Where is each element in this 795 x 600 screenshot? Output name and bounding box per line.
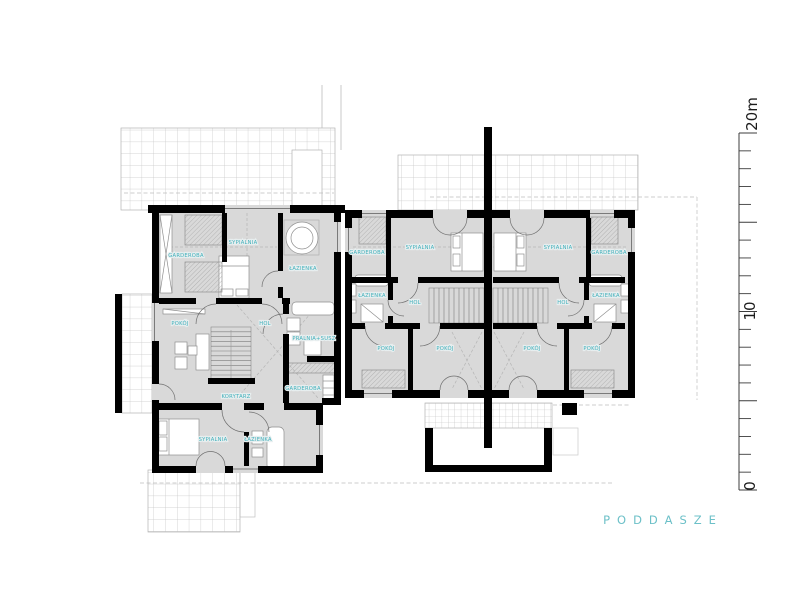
scale-label-mid: 10 xyxy=(741,301,759,320)
room-label-a-hol: HOL xyxy=(259,321,271,327)
room-label-b-pokoj-1: POKÓJ xyxy=(377,345,394,352)
room-label-c-pokoj-1: POKÓJ xyxy=(523,345,540,352)
floor-plan-page: GARDEROBA SYPIALNIA ŁAZIENKA POKÓJ HOL P… xyxy=(0,0,795,600)
scale-bar: 20m 10 0 xyxy=(739,97,761,491)
room-label-a-lazienka-2: ŁAZIENKA xyxy=(243,437,272,443)
scale-label-top: 20m xyxy=(743,97,761,131)
room-label-c-lazienka: ŁAZIENKA xyxy=(591,293,620,299)
room-label-a-garderoba: GARDEROBA xyxy=(168,253,204,259)
room-label-b-hol: HOL xyxy=(409,300,421,306)
room-label-a-sypialnia-1: SYPIALNIA xyxy=(229,240,258,246)
room-label-b-sypialnia: SYPIALNIA xyxy=(406,245,435,251)
room-label-c-pokoj-2: POKÓJ xyxy=(583,345,600,352)
room-label-a-pralnia: PRALNIA+SUSZ xyxy=(292,336,335,342)
room-label-a-pokoj: POKÓJ xyxy=(171,320,188,327)
room-label-b-garderoba: GARDEROBA xyxy=(349,250,385,256)
room-label-c-hol: HOL xyxy=(557,300,569,306)
scale-label-bottom: 0 xyxy=(741,481,759,491)
room-label-b-lazienka: ŁAZIENKA xyxy=(357,293,386,299)
plan-title: PODDASZE xyxy=(603,513,723,527)
room-label-a-lazienka-1: ŁAZIENKA xyxy=(288,266,317,272)
room-label-a-korytarz: KORYTARZ xyxy=(221,394,250,400)
floor-plan-drawing: GARDEROBA SYPIALNIA ŁAZIENKA POKÓJ HOL P… xyxy=(0,0,795,600)
room-label-c-garderoba: GARDEROBA xyxy=(591,250,627,256)
room-label-a-garderoba-2: GARDEROBA xyxy=(285,386,321,392)
room-label-b-pokoj-2: POKÓJ xyxy=(436,345,453,352)
room-label-c-sypialnia: SYPIALNIA xyxy=(544,245,573,251)
room-label-a-sypialnia-2: SYPIALNIA xyxy=(199,437,228,443)
